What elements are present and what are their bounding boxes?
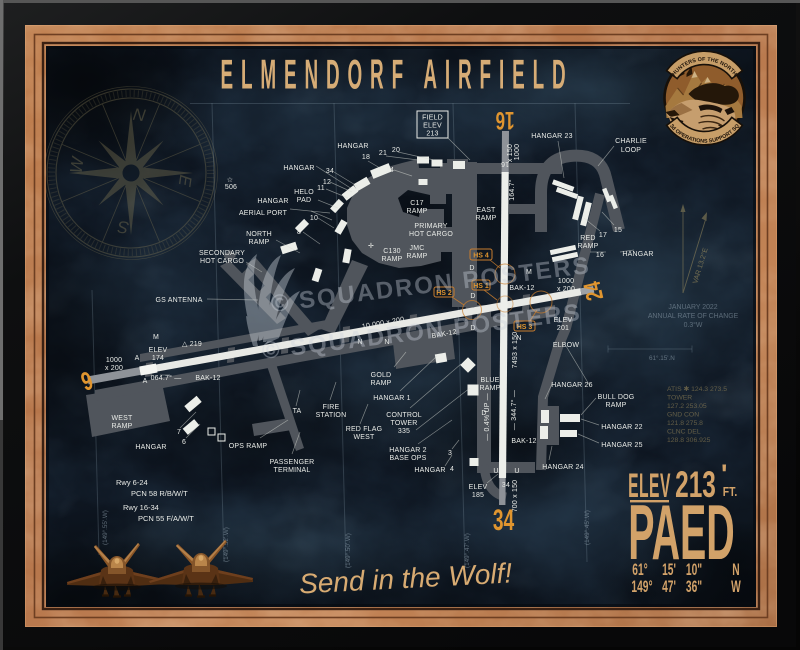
- svg-text:Rwy 6-24: Rwy 6-24: [116, 478, 148, 487]
- svg-text:HANGAR 22: HANGAR 22: [601, 424, 642, 431]
- svg-text:SECONDARY: SECONDARY: [199, 250, 245, 257]
- svg-text:15: 15: [614, 227, 622, 234]
- svg-text:GOLD: GOLD: [371, 372, 392, 379]
- svg-text:RAMP: RAMP: [406, 208, 427, 215]
- svg-text:ELEV: ELEV: [149, 347, 168, 354]
- svg-text:✛: ✛: [368, 242, 374, 250]
- svg-text:1000: 1000: [106, 357, 122, 364]
- svg-text:16: 16: [596, 252, 604, 259]
- svg-text:ELBOW: ELBOW: [553, 342, 579, 349]
- svg-text:CLNC DEL: CLNC DEL: [667, 429, 701, 436]
- svg-text:HANGAR 23: HANGAR 23: [531, 133, 572, 140]
- svg-text:LOOP: LOOP: [621, 147, 641, 154]
- svg-text:14: 14: [386, 167, 394, 174]
- svg-text:C130: C130: [383, 248, 401, 255]
- svg-text:213: 213: [426, 131, 438, 138]
- svg-text:0.3°W: 0.3°W: [684, 321, 703, 329]
- svg-text:15': 15': [662, 561, 676, 579]
- svg-text:7493 x 150: 7493 x 150: [512, 332, 519, 369]
- svg-text:335: 335: [398, 428, 410, 435]
- svg-text:10: 10: [310, 215, 318, 222]
- svg-text:U: U: [514, 468, 519, 475]
- svg-text:RAMP: RAMP: [605, 402, 626, 409]
- svg-text:TERMINAL: TERMINAL: [274, 467, 311, 474]
- svg-text:RAMP: RAMP: [406, 253, 427, 260]
- svg-text:HANGAR 26: HANGAR 26: [551, 382, 592, 389]
- svg-text:— 0.4% UP —: — 0.4% UP —: [484, 393, 491, 441]
- svg-text:10": 10": [686, 561, 702, 579]
- svg-text:HANGAR: HANGAR: [135, 444, 166, 451]
- svg-text:6: 6: [182, 439, 186, 446]
- svg-text:A: A: [135, 355, 140, 362]
- svg-text:(149°.55'.W): (149°.55'.W): [101, 510, 109, 545]
- svg-text:TOWER: TOWER: [391, 420, 418, 427]
- svg-text:20: 20: [392, 147, 400, 154]
- svg-text:RAMP: RAMP: [479, 385, 500, 392]
- svg-text:(149°.50'.W): (149°.50'.W): [344, 533, 352, 568]
- svg-text:C17: C17: [410, 200, 423, 207]
- svg-text:BAK-12: BAK-12: [195, 375, 220, 382]
- svg-text:ELEV: ELEV: [469, 484, 488, 491]
- svg-text:17: 17: [599, 232, 607, 239]
- svg-text:HANGAR: HANGAR: [622, 251, 653, 258]
- svg-text:TA: TA: [293, 408, 302, 415]
- svg-text:34: 34: [493, 504, 514, 537]
- svg-text:BULL DOG: BULL DOG: [598, 394, 635, 401]
- svg-text:HANGAR: HANGAR: [283, 165, 314, 172]
- svg-text:1000: 1000: [514, 144, 521, 160]
- svg-text:ELEV: ELEV: [423, 123, 442, 130]
- svg-text:N: N: [732, 561, 739, 579]
- svg-text:FIRE: FIRE: [323, 404, 340, 411]
- svg-text:TOWER: TOWER: [667, 395, 692, 402]
- svg-text:PCN 55 F/A/W/T: PCN 55 F/A/W/T: [138, 514, 194, 523]
- svg-text:HANGAR: HANGAR: [414, 467, 445, 474]
- svg-text:3: 3: [448, 450, 452, 457]
- svg-text:AERIAL PORT: AERIAL PORT: [239, 210, 288, 217]
- svg-text:HANGAR 1: HANGAR 1: [373, 395, 410, 402]
- svg-text:(149°.45'.W): (149°.45'.W): [583, 510, 591, 545]
- svg-text:RED FLAG: RED FLAG: [346, 426, 383, 433]
- svg-text:11: 11: [317, 185, 325, 192]
- svg-text:61°.15'.N: 61°.15'.N: [649, 354, 675, 362]
- svg-text:RAMP: RAMP: [381, 256, 402, 263]
- svg-text:34: 34: [326, 168, 334, 175]
- svg-text:WEST: WEST: [353, 434, 375, 441]
- svg-text:CHARLIE: CHARLIE: [615, 138, 647, 145]
- svg-text:RAMP: RAMP: [370, 380, 391, 387]
- svg-text:HELO: HELO: [294, 189, 314, 196]
- svg-text:8: 8: [297, 229, 301, 236]
- svg-text:PRIMARY: PRIMARY: [414, 223, 447, 230]
- svg-text:BASE OPS: BASE OPS: [389, 455, 426, 462]
- svg-text:47': 47': [662, 578, 676, 596]
- svg-text:x 200: x 200: [105, 365, 123, 372]
- svg-text:PASSENGER: PASSENGER: [270, 459, 315, 466]
- svg-text:☆: ☆: [227, 176, 233, 184]
- svg-text:174: 174: [152, 355, 164, 362]
- svg-text:D: D: [470, 293, 475, 300]
- svg-text:ANNUAL RATE OF CHANGE: ANNUAL RATE OF CHANGE: [648, 313, 739, 320]
- svg-text:18: 18: [362, 154, 370, 161]
- svg-text:RED: RED: [580, 235, 595, 242]
- svg-text:61°: 61°: [632, 561, 647, 579]
- svg-text:△ 219: △ 219: [182, 341, 202, 348]
- svg-text:Rwy 16-34: Rwy 16-34: [123, 503, 159, 512]
- svg-text:064.7° —: 064.7° —: [151, 374, 182, 382]
- svg-text:121.8 275.8: 121.8 275.8: [667, 420, 703, 427]
- svg-text:GND CON: GND CON: [667, 412, 699, 419]
- svg-text:164.7°: 164.7°: [508, 179, 516, 201]
- svg-text:OPS RAMP: OPS RAMP: [229, 443, 268, 450]
- svg-text:BLUE: BLUE: [480, 377, 499, 384]
- svg-text:A: A: [143, 378, 148, 385]
- svg-text:FIELD: FIELD: [422, 115, 443, 122]
- svg-text:x 150: x 150: [507, 144, 514, 162]
- svg-text:U: U: [493, 468, 498, 475]
- svg-text:M: M: [153, 334, 159, 341]
- svg-text:HANGAR 24: HANGAR 24: [542, 464, 583, 471]
- svg-text:7: 7: [177, 429, 181, 436]
- svg-text:HANGAR 2: HANGAR 2: [389, 447, 426, 454]
- svg-text:GS ANTENNA: GS ANTENNA: [155, 297, 202, 304]
- svg-text:ELMENDORF AIRFIELD: ELMENDORF AIRFIELD: [220, 51, 573, 97]
- svg-text:RAMP: RAMP: [248, 239, 269, 246]
- svg-text:16: 16: [495, 106, 514, 134]
- svg-text:HANGAR 25: HANGAR 25: [601, 442, 642, 449]
- svg-text:185: 185: [472, 492, 484, 499]
- svg-text:PAD: PAD: [297, 197, 311, 204]
- svg-text:RAMP: RAMP: [475, 215, 496, 222]
- svg-text:CONTROL: CONTROL: [386, 412, 422, 419]
- svg-text:RAMP: RAMP: [577, 243, 598, 250]
- svg-text:ATIS ✱ 124.3 273.5: ATIS ✱ 124.3 273.5: [667, 385, 727, 393]
- svg-text:HS 4: HS 4: [473, 253, 489, 260]
- svg-text:JMC: JMC: [410, 245, 425, 252]
- svg-text:21: 21: [379, 150, 387, 157]
- svg-text:149°: 149°: [631, 578, 652, 596]
- svg-text:HANGAR: HANGAR: [257, 198, 288, 205]
- svg-text:NORTH: NORTH: [246, 231, 272, 238]
- svg-text:HOT CARGO: HOT CARGO: [200, 258, 244, 265]
- svg-text:— 344.7° —: — 344.7° —: [510, 390, 518, 430]
- svg-text:506: 506: [225, 184, 237, 191]
- svg-text:JANUARY 2022: JANUARY 2022: [668, 304, 717, 311]
- svg-text:EAST: EAST: [476, 207, 496, 214]
- svg-text:127.2 253.05: 127.2 253.05: [667, 403, 707, 410]
- svg-text:WEST: WEST: [111, 415, 133, 422]
- svg-text:BAK-12: BAK-12: [511, 438, 536, 445]
- svg-text:W: W: [731, 578, 741, 596]
- svg-text:34: 34: [502, 482, 510, 489]
- svg-text:HOT CARGO: HOT CARGO: [409, 231, 453, 238]
- svg-text:HANGAR: HANGAR: [337, 143, 368, 150]
- svg-text:4: 4: [450, 466, 454, 473]
- svg-text:x 200: x 200: [557, 286, 575, 293]
- svg-text:128.8 306.925: 128.8 306.925: [667, 437, 711, 444]
- svg-text:RAMP: RAMP: [111, 423, 132, 430]
- svg-text:STATION: STATION: [316, 412, 347, 419]
- svg-text:36": 36": [686, 578, 702, 596]
- svg-text:PCN 58 R/B/W/T: PCN 58 R/B/W/T: [131, 489, 188, 498]
